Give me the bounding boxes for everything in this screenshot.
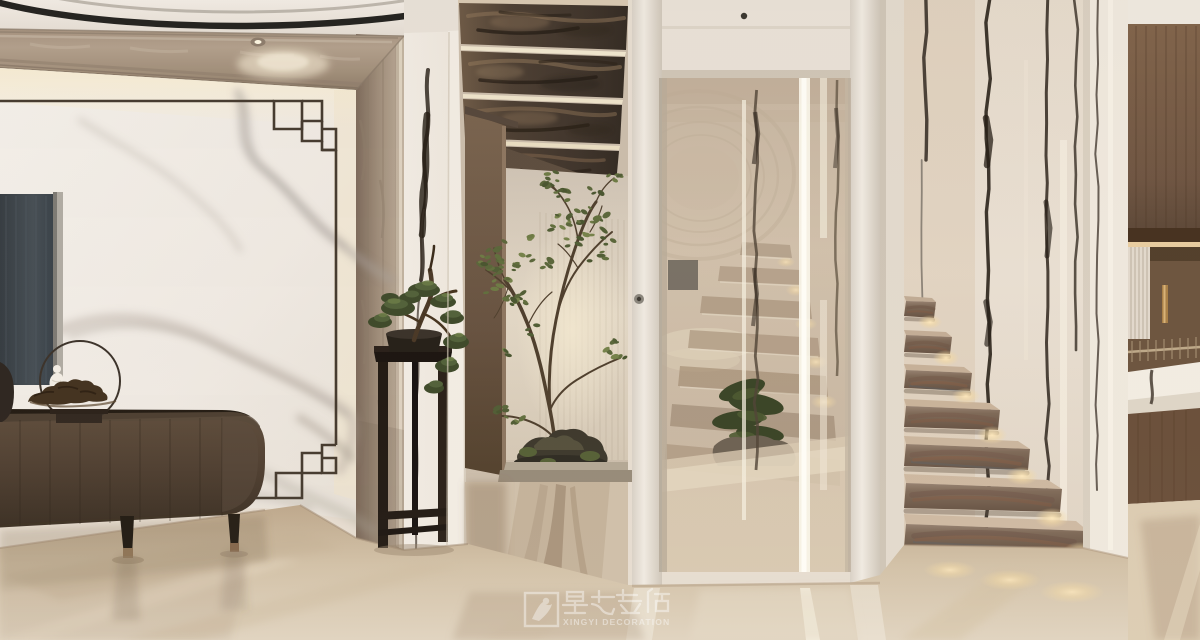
svg-text:XINGYI DECORATION: XINGYI DECORATION — [563, 617, 670, 627]
